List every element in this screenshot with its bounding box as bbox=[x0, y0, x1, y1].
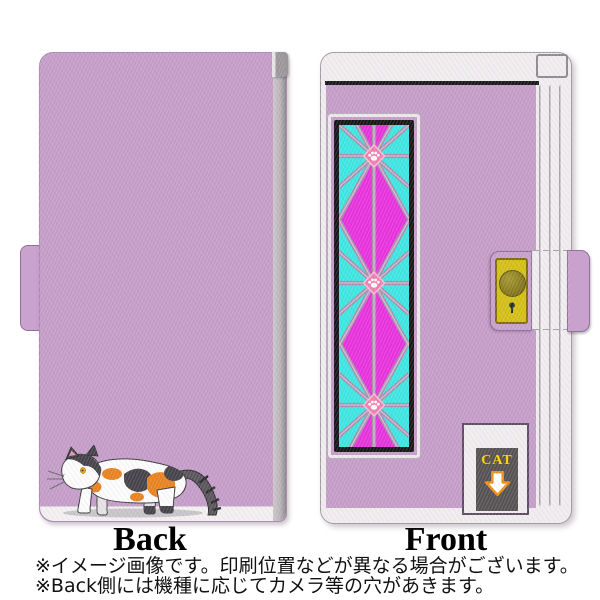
back-view-label: Back bbox=[113, 521, 187, 559]
disclaimer-line-1: ※イメージ画像です。印刷位置などが異なる場合がございます。 bbox=[35, 556, 600, 576]
cat-sign: CAT bbox=[476, 448, 518, 511]
clasp-strap-tip bbox=[567, 250, 590, 332]
back-spine-tab bbox=[272, 52, 288, 77]
clasp-button-icon bbox=[499, 270, 526, 297]
clasp-strap-flap bbox=[490, 251, 532, 331]
clasp-plate bbox=[495, 258, 528, 324]
product-image: CAT Back Front ※イメージ画像です。印刷位置などが異なる場合がござ… bbox=[0, 0, 600, 600]
keyhole-icon bbox=[508, 302, 516, 314]
disclaimer-line-2: ※Back側には機種に応じてカメラ等の穴があきます。 bbox=[35, 576, 600, 596]
stained-glass-window bbox=[339, 125, 409, 447]
down-arrow-icon bbox=[484, 471, 511, 496]
case-spine-edge bbox=[273, 53, 286, 521]
spine-groove bbox=[559, 85, 563, 506]
spine-corner-piece bbox=[536, 54, 568, 78]
cat-illustration bbox=[47, 445, 223, 521]
back-case bbox=[39, 52, 287, 522]
front-view-label: Front bbox=[405, 521, 487, 559]
spine-groove bbox=[549, 85, 553, 506]
cat-sign-text: CAT bbox=[481, 453, 513, 469]
spine-groove bbox=[539, 85, 543, 506]
front-case: CAT bbox=[320, 52, 572, 524]
cat-sign-frame: CAT bbox=[462, 423, 529, 515]
